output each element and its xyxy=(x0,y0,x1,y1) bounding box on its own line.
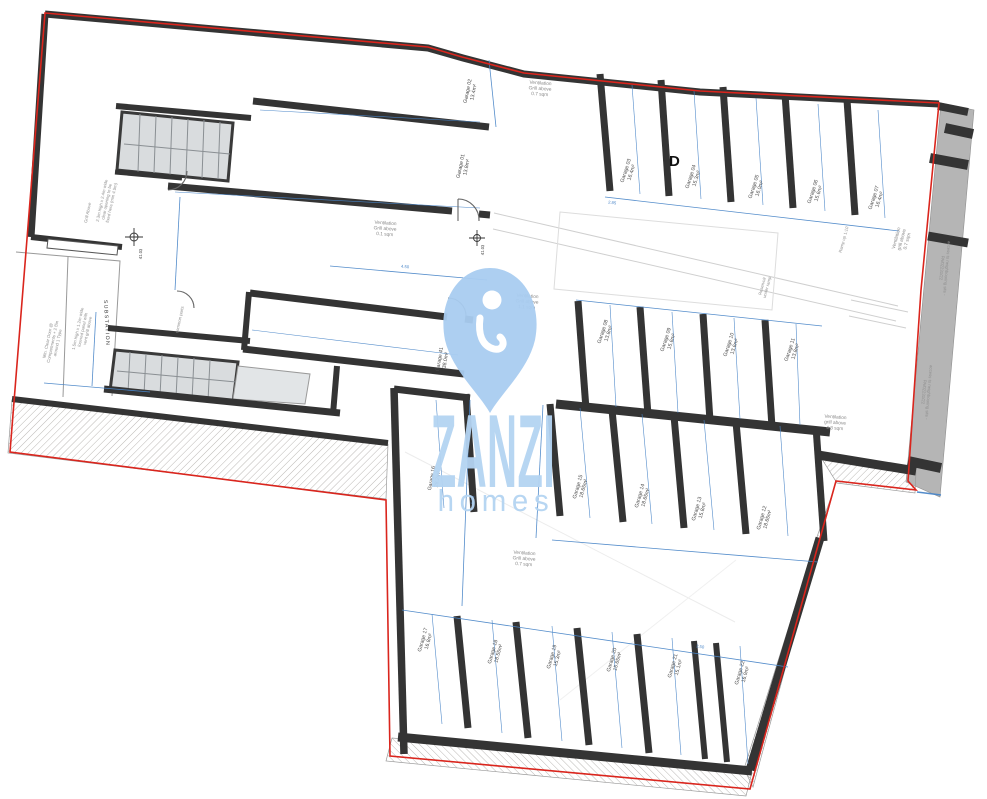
spot-level-value: 41.03 xyxy=(480,244,485,255)
section-marker-d: D xyxy=(669,153,680,170)
staircase-top xyxy=(117,112,233,181)
watermark-tagline-text: homes xyxy=(438,484,555,518)
dimension-value: 4.50 xyxy=(401,264,410,270)
floor-plan-drawing: D SUBSTATION Garage 0213.4m²Garage 0113.… xyxy=(0,0,987,799)
spot-level-value: 41.03 xyxy=(138,248,143,259)
floor-plan-page: D SUBSTATION Garage 0213.4m²Garage 0113.… xyxy=(0,0,987,799)
dimension-value: 2.85 xyxy=(608,200,617,206)
